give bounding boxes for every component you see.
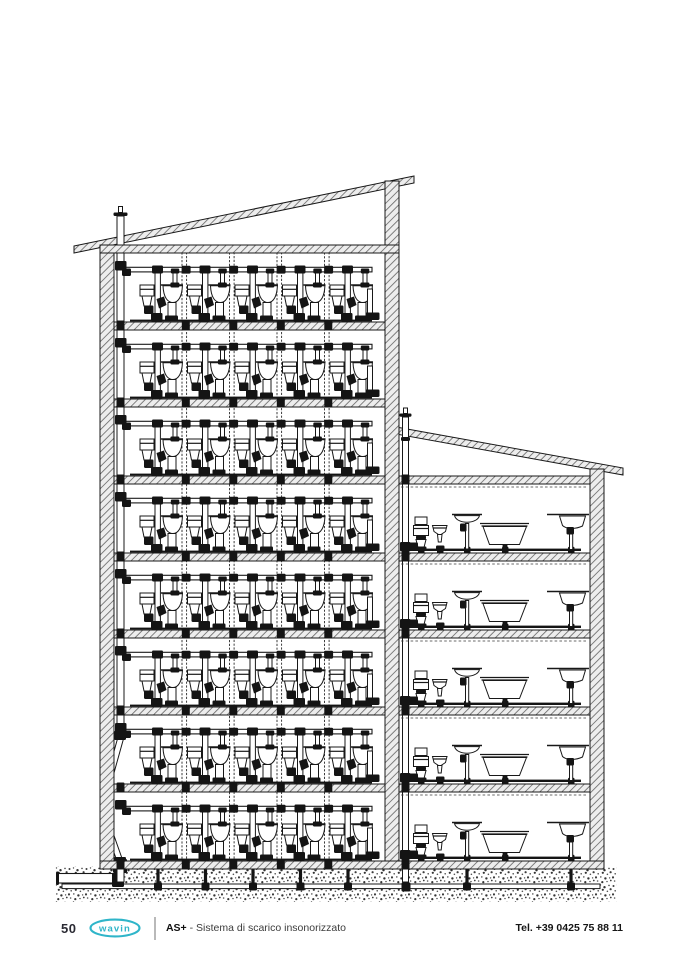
wc-unit <box>140 343 183 399</box>
bidet <box>433 834 448 859</box>
kitchen-sink <box>547 592 589 627</box>
wc-unit <box>188 651 231 707</box>
product-title: AS+ - Sistema di scarico insonorizzato <box>166 922 346 934</box>
wc-unit <box>140 574 183 630</box>
pedestal-washbasin <box>452 823 482 858</box>
bidet <box>433 680 448 705</box>
wc-unit <box>140 497 183 553</box>
wc-unit <box>140 651 183 707</box>
annex-roof <box>396 427 623 475</box>
bathtub <box>480 832 529 858</box>
wc-unit <box>283 574 326 630</box>
wc-unit <box>188 728 231 784</box>
kitchen-sink <box>547 515 589 550</box>
bidet <box>433 757 448 782</box>
wavin-logo-text: wavin <box>99 923 132 934</box>
wc-unit <box>235 728 278 784</box>
bathroom-floor <box>115 646 380 707</box>
wc-with-cistern <box>409 825 429 859</box>
wc-unit <box>330 651 380 707</box>
kitchen-sink <box>547 823 589 858</box>
wc-unit <box>283 497 326 553</box>
wc-unit <box>140 266 183 322</box>
wc-unit <box>330 266 380 322</box>
page-footer: 50 wavin AS+ - Sistema di scarico insono… <box>0 908 678 948</box>
wc-unit <box>235 805 278 861</box>
wc-unit <box>235 266 278 322</box>
kitchen-sink <box>547 746 589 781</box>
wc-unit <box>330 574 380 630</box>
product-label: AS+ <box>166 922 187 934</box>
annex-floor <box>400 641 589 707</box>
wc-unit <box>188 805 231 861</box>
wavin-logo: wavin <box>89 918 141 938</box>
annex-floor <box>400 564 589 630</box>
wc-unit <box>283 728 326 784</box>
pedestal-washbasin <box>452 669 482 704</box>
wc-unit <box>235 343 278 399</box>
bidet <box>433 603 448 628</box>
wc-with-cistern <box>409 517 429 551</box>
catalog-page: 50 wavin AS+ - Sistema di scarico insono… <box>0 0 678 959</box>
building-section-drawing <box>0 0 678 959</box>
bathroom-floor <box>115 800 380 861</box>
wc-unit <box>330 343 380 399</box>
wc-unit <box>140 728 183 784</box>
bathroom-floor <box>115 723 380 784</box>
bathtub <box>480 755 529 781</box>
bathroom-floor <box>115 261 380 322</box>
bidet <box>433 526 448 551</box>
wc-with-cistern <box>409 748 429 782</box>
page-number: 50 <box>61 921 76 936</box>
phone-number: Tel. +39 0425 75 88 11 <box>515 922 623 934</box>
bathroom-floor <box>115 569 380 630</box>
wc-unit <box>330 497 380 553</box>
bathroom-floor <box>115 415 380 476</box>
wc-unit <box>140 805 183 861</box>
wc-unit <box>235 497 278 553</box>
footer-divider <box>154 917 156 940</box>
wc-unit <box>188 574 231 630</box>
wc-unit <box>330 805 380 861</box>
annex-floor <box>400 795 589 861</box>
annex-floor <box>400 718 589 784</box>
bathtub <box>480 678 529 704</box>
wc-unit <box>330 728 380 784</box>
wc-unit <box>283 343 326 399</box>
plumbing-cross-section-svg <box>0 0 678 959</box>
wc-unit <box>188 420 231 476</box>
wc-with-cistern <box>409 671 429 705</box>
product-description: - Sistema di scarico insonorizzato <box>190 922 346 934</box>
ground-slab <box>100 861 604 869</box>
wc-unit <box>283 266 326 322</box>
wavin-logo-icon: wavin <box>89 918 141 938</box>
wc-unit <box>283 651 326 707</box>
bathtub <box>480 524 529 550</box>
wc-unit <box>235 574 278 630</box>
pedestal-washbasin <box>452 592 482 627</box>
kitchen-sink <box>547 669 589 704</box>
annex-floor <box>400 487 589 553</box>
pedestal-washbasin <box>452 515 482 550</box>
wc-unit <box>283 420 326 476</box>
wc-unit <box>140 420 183 476</box>
bathtub <box>480 601 529 627</box>
wc-unit <box>188 343 231 399</box>
wc-unit <box>330 420 380 476</box>
bathroom-floor <box>115 338 380 399</box>
wc-unit <box>188 497 231 553</box>
pedestal-washbasin <box>452 746 482 781</box>
wc-unit <box>283 805 326 861</box>
wc-unit <box>188 266 231 322</box>
bathroom-floor <box>115 492 380 553</box>
wc-unit <box>235 420 278 476</box>
wc-with-cistern <box>409 594 429 628</box>
wc-unit <box>235 651 278 707</box>
